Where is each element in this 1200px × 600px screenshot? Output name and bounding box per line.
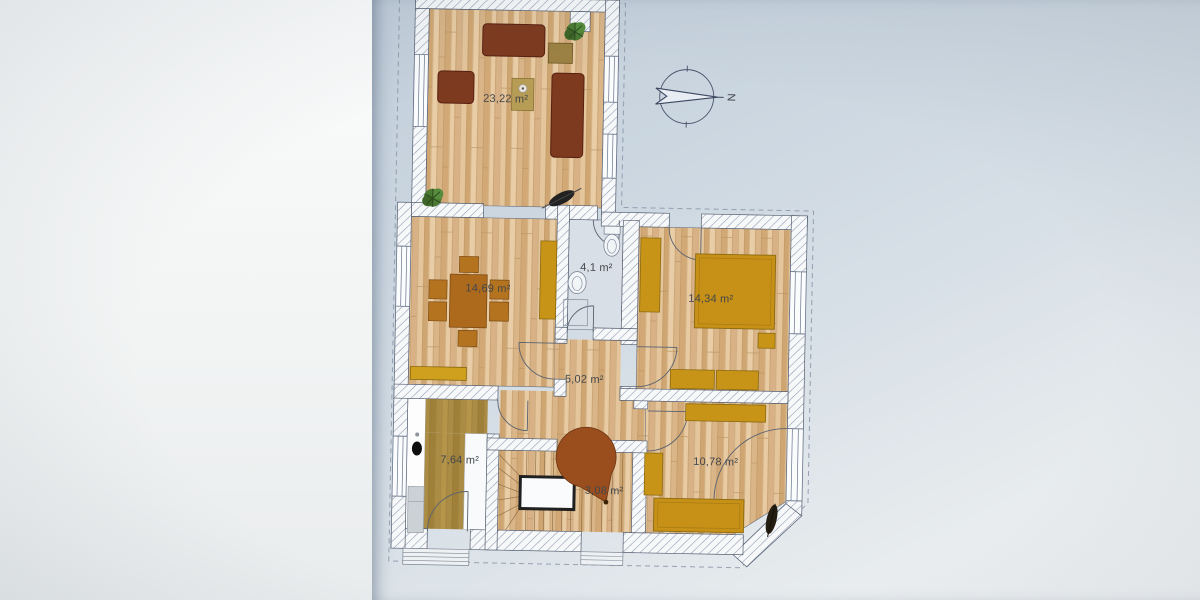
exterior-steps [403,548,623,568]
room-area-label-bedroom-large: 14,34 m² [688,293,733,306]
compass: N [655,65,737,129]
room-area-label-bedroom-small: 10,78 m² [693,456,738,469]
nightstand [758,333,775,348]
wardrobe [686,404,766,423]
rear-steps [581,552,623,566]
kitchen-entry-floor [463,433,487,529]
sideboard [410,366,466,380]
window [396,246,411,306]
cabinet [644,453,663,495]
room-area-label-stairs: 3,08 m² [585,485,624,498]
entrance-steps [403,548,469,565]
window [602,134,617,178]
window [413,54,428,126]
room-kitchen-floor [423,433,465,530]
balcony-door [786,429,803,501]
compass-north-label: N [725,93,737,101]
sink [568,271,586,293]
tall-cabinet [539,241,556,319]
room-area-label-living: 23,22 m² [483,93,528,106]
armchair [438,71,475,104]
room-area-label-kitchen: 7,64 m² [440,454,479,467]
toilet [604,226,621,256]
dresser [670,369,714,389]
room-area-label-hall: 5,02 m² [565,373,604,386]
room-area-label-dining: 14,69 m² [465,282,510,295]
window [392,436,407,496]
side-table [548,43,572,63]
sofa-right [551,73,585,158]
photo-of-floor-plan: N 23,22 m² 14,69 m² 4,1 m² 14,34 m² 5,02… [0,0,1200,600]
north-arrow-icon [656,88,718,105]
fridge [407,486,424,532]
window [604,56,619,102]
stair-void [520,477,575,510]
floor-plan-drawing: N 23,22 m² 14,69 m² 4,1 m² 14,34 m² 5,02… [0,0,1200,600]
room-area-label-bath: 4,1 m² [580,262,613,275]
room-kitchen-floor-top [425,399,488,434]
sofa-top [482,24,545,57]
wardrobe [640,238,661,312]
window [789,272,806,334]
double-bed [694,254,775,330]
dresser [716,370,758,390]
single-bed [653,498,744,533]
